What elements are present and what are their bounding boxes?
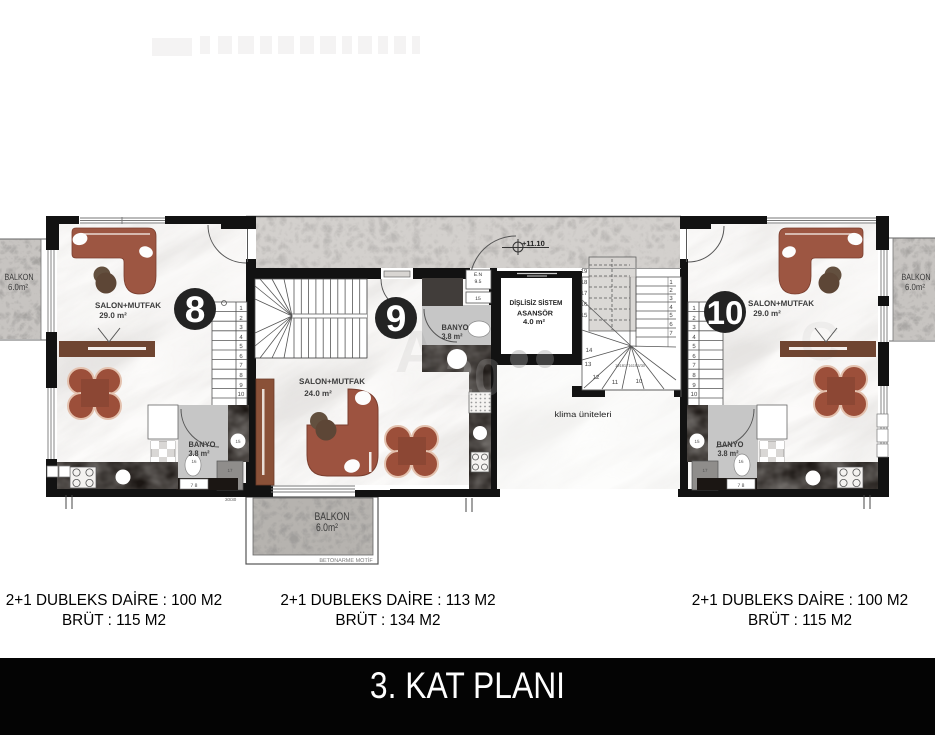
svg-text:6.0m²: 6.0m² — [316, 522, 338, 534]
svg-text:10: 10 — [691, 391, 698, 398]
svg-text:4.0 m²: 4.0 m² — [523, 319, 546, 326]
svg-text:6.0m²: 6.0m² — [8, 282, 28, 292]
svg-text:18: 18 — [581, 279, 588, 286]
svg-text:7 8: 7 8 — [738, 483, 745, 489]
svg-text:13: 13 — [585, 361, 592, 368]
svg-text:BALKON: BALKON — [902, 272, 931, 282]
svg-text:+11.10: +11.10 — [522, 239, 545, 248]
svg-text:14: 14 — [586, 347, 593, 354]
svg-text:E.N: E.N — [474, 272, 483, 278]
svg-text:BETONARME MOTİF: BETONARME MOTİF — [319, 557, 373, 564]
svg-text:DİŞLİSİZ SİSTEM: DİŞLİSİZ SİSTEM — [510, 299, 563, 307]
svg-text:19181716153/30: 19181716153/30 — [615, 363, 646, 368]
svg-text:15: 15 — [235, 439, 241, 444]
svg-text:7 8: 7 8 — [191, 483, 198, 489]
svg-text:24.0 m²: 24.0 m² — [304, 389, 332, 398]
svg-text:ASANSÖR: ASANSÖR — [517, 310, 553, 318]
svg-text:BANYO: BANYO — [717, 440, 744, 449]
svg-text:15: 15 — [694, 439, 700, 444]
svg-text:19: 19 — [581, 268, 588, 275]
svg-text:klima üniteleri: klima üniteleri — [555, 410, 612, 419]
svg-text:SALON+MUTFAK: SALON+MUTFAK — [299, 377, 365, 386]
svg-text:BANYO: BANYO — [189, 440, 216, 449]
svg-text:10: 10 — [707, 294, 744, 331]
svg-text:3.8 m²: 3.8 m² — [189, 449, 210, 458]
svg-text:16: 16 — [581, 301, 588, 308]
svg-text:BANYO: BANYO — [442, 323, 469, 332]
svg-text:17: 17 — [581, 290, 588, 297]
svg-text:16: 16 — [191, 459, 197, 464]
svg-text:17: 17 — [702, 468, 708, 473]
svg-text:30/30: 30/30 — [225, 497, 237, 502]
svg-text:3.8 m²: 3.8 m² — [442, 332, 463, 341]
svg-text:11: 11 — [612, 379, 619, 386]
svg-text:3.8 m²: 3.8 m² — [718, 449, 739, 458]
svg-text:8: 8 — [185, 289, 206, 330]
svg-text:29.0 m²: 29.0 m² — [753, 309, 781, 318]
svg-text:15: 15 — [581, 312, 588, 319]
svg-text:10: 10 — [238, 391, 245, 398]
svg-text:6.0m²: 6.0m² — [905, 282, 925, 292]
svg-text:10: 10 — [636, 378, 643, 385]
svg-text:29.0 m²: 29.0 m² — [99, 311, 127, 320]
svg-text:12: 12 — [593, 374, 600, 381]
svg-text:A: A — [395, 318, 438, 385]
svg-text:16: 16 — [738, 459, 744, 464]
svg-text:SALON+MUTFAK: SALON+MUTFAK — [748, 299, 814, 308]
svg-text:BALKON: BALKON — [5, 272, 34, 282]
svg-text:15: 15 — [475, 296, 481, 302]
svg-text:17: 17 — [227, 468, 233, 473]
svg-text:20: 20 — [445, 349, 503, 407]
svg-text:9.5: 9.5 — [475, 279, 482, 285]
svg-text:C: C — [800, 310, 840, 372]
svg-text:SALON+MUTFAK: SALON+MUTFAK — [95, 301, 161, 310]
